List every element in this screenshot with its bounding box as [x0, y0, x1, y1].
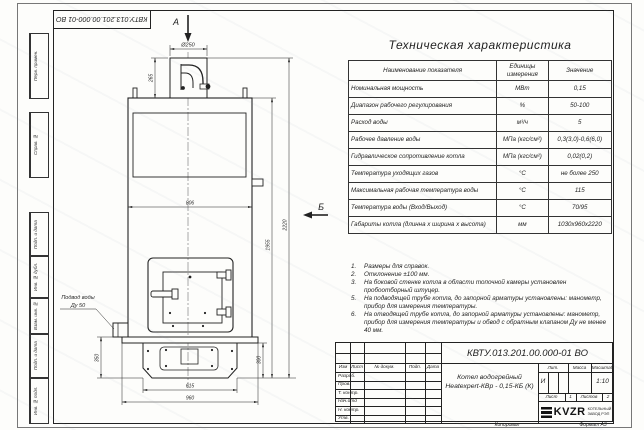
- doc-number: КВТУ.013.201.00.000-01 ВО: [441, 343, 614, 363]
- furnace-door: [148, 258, 233, 332]
- lifting-lug-left: [133, 88, 137, 98]
- table-row: Диапазон рабочего регулирования%50-100: [349, 98, 612, 115]
- dim-label-base-width-outer: 960: [186, 396, 195, 402]
- margin-box-perv-primen: Перв. примен.: [29, 33, 49, 99]
- sheet-value: 1: [565, 394, 576, 399]
- scale-header: Масштаб: [591, 365, 614, 370]
- tb-row-razrab: Разраб.: [338, 374, 355, 379]
- base-panel: [160, 347, 218, 370]
- outlet-stub: [252, 179, 263, 186]
- notes-list: 1.Размеры для справок. 2.Отклонение ±100…: [348, 263, 614, 335]
- line: [336, 415, 441, 416]
- line: [558, 372, 559, 393]
- company-subtitle: КОТЕЛЬНЫЙ ЗАВОД РЭП: [588, 407, 612, 416]
- water-inlet-label-1: Подвод воды: [61, 295, 94, 301]
- tb-row-nachotd: Нач.отд: [338, 399, 357, 404]
- margin-label: Инв. № дубл.: [30, 256, 40, 298]
- list-item: 5.На подводящей трубе котла, до запорной…: [348, 295, 614, 311]
- dim-chimney-diameter: Ø250: [170, 43, 207, 57]
- tb-col-list: Лист: [350, 364, 364, 369]
- view-b-label: Б: [318, 202, 324, 212]
- company-name: KVZR: [554, 406, 586, 418]
- water-inlet-pipe: [113, 323, 128, 337]
- top-panel: [133, 113, 246, 177]
- dim-label-body-height: 1955: [266, 239, 272, 250]
- dim-body-height: 1955: [252, 98, 276, 378]
- list-item: 2.Отклонение ±100 мм.: [348, 271, 614, 279]
- lit-header: Лит.: [538, 365, 568, 370]
- list-item: 1.Размеры для справок.: [348, 263, 614, 271]
- lifting-lug-right: [243, 88, 247, 98]
- dim-label-body-width: 806: [186, 201, 195, 207]
- ash-opening: [181, 349, 198, 364]
- view-b-marker: Б: [303, 202, 328, 219]
- base-flange: [122, 337, 258, 343]
- table-row: Рабочее давление водыМПа (кгс/см²)0,3(3,…: [349, 132, 612, 149]
- table-row: Температура уходящих газов°Сне более 250: [349, 166, 612, 183]
- company-logo: KVZR КОТЕЛЬНЫЙ ЗАВОД РЭП: [538, 401, 614, 423]
- table-row: Гидравлическое сопротивление котлаМПа (к…: [349, 149, 612, 166]
- line: [336, 381, 441, 382]
- water-inlet-callout: Подвод воды Ду 50: [60, 295, 114, 329]
- line: [336, 353, 441, 354]
- product-name: Котел водогрейный Heatexpert-КВр - 0,15-…: [441, 365, 538, 399]
- tb-col-dokum: № докум.: [364, 364, 405, 369]
- lit-value: И: [538, 378, 548, 385]
- margin-box-sprav: Справ. №: [29, 112, 49, 178]
- dim-body-width: 806: [128, 201, 252, 208]
- spec-header-name: Наименование показателя: [349, 61, 497, 81]
- margin-label: Взам. инв. №: [30, 298, 40, 334]
- sheet-label: Лист: [538, 394, 565, 399]
- table-row: Максимальная рабочая температура воды°С1…: [349, 183, 612, 200]
- table-row: Расход водым³/ч5: [349, 115, 612, 132]
- view-a-marker: А: [172, 15, 192, 42]
- base-pedestal: [143, 343, 237, 378]
- spec-header-unit: Единицы измерения: [497, 61, 548, 81]
- dim-label-base-width-inner: 615: [186, 384, 195, 390]
- dim-label-total-height: 2220: [283, 219, 289, 231]
- list-item: 3.На боковой стенке котла в области топо…: [348, 279, 614, 295]
- dim-label-base-height-right: 300: [257, 356, 263, 365]
- dim-label-chimney-diameter: Ø250: [180, 43, 195, 49]
- margin-label: Подп. и дата: [30, 334, 40, 378]
- line: [405, 343, 406, 423]
- line: [548, 372, 549, 393]
- line: [425, 343, 426, 423]
- title-block: КВТУ.013.201.00.000-01 ВО Изм Лист № док…: [335, 342, 613, 422]
- table-row: Температура воды (Вход/Выход)°С70/95: [349, 200, 612, 217]
- tb-col-data: Дата: [425, 364, 441, 369]
- table-row: Номинальная мощностьМВт0,15: [349, 81, 612, 98]
- boiler-front-view-drawing: А Ø250 265: [53, 10, 335, 422]
- tb-row-prov: Пров.: [338, 382, 351, 387]
- format-label: Формат А3: [558, 422, 628, 428]
- spec-table-title: Техническая характеристика: [348, 38, 612, 52]
- kvzr-logo-icon: [541, 407, 552, 418]
- spec-header-row: Наименование показателя Единицы измерени…: [349, 61, 612, 81]
- margin-label: Подп. и дата: [30, 213, 40, 256]
- dim-base-width-inner: 615: [143, 378, 237, 393]
- view-a-label: А: [172, 17, 179, 27]
- margin-box-vzam-inv: Взам. инв. №: [29, 297, 49, 335]
- margin-box-inv-podl: Инв. № подл.: [29, 377, 49, 424]
- tb-row-nkontr: Н. контр.: [338, 408, 360, 413]
- dim-chimney-height: 265: [149, 58, 169, 98]
- margin-box-podp-data-2: Подп. и дата: [29, 333, 49, 379]
- line: [364, 343, 365, 423]
- spec-header-value: Значение: [548, 61, 612, 81]
- door-knob: [189, 276, 192, 279]
- margin-box-podp-data-1: Подп. и дата: [29, 212, 49, 257]
- drawing-sheet: Перв. примен. Справ. № Подп. и дата Инв.…: [0, 0, 644, 430]
- dim-label-chimney-height: 265: [149, 74, 155, 84]
- margin-box-inv-dubl: Инв. № дубл.: [29, 255, 49, 299]
- scale-value: 1:10: [591, 378, 614, 385]
- spec-table: Наименование показателя Единицы измерени…: [348, 60, 612, 234]
- leader-line: [60, 309, 114, 329]
- dim-base-width-outer: 960: [122, 343, 258, 405]
- copied-label: Копировал: [472, 422, 542, 428]
- tb-col-podp: Подп.: [405, 364, 425, 369]
- mass-header: Масса: [568, 365, 591, 370]
- list-item: 6.На отводящей трубе котла, до запорной …: [348, 311, 614, 335]
- margin-label: Инв. № подл.: [30, 378, 40, 423]
- tb-row-utv: Утв.: [338, 416, 349, 421]
- tb-row-tkontr: Т. контр.: [338, 391, 359, 396]
- sheets-label: Листов: [576, 394, 602, 399]
- door-bolts: [169, 312, 206, 327]
- dim-total-height: 2220: [207, 58, 293, 378]
- dim-label-base-height-left: 350: [95, 354, 101, 363]
- tb-col-izm: Изм: [336, 364, 350, 369]
- water-inlet-label-2: Ду 50: [70, 303, 86, 309]
- table-row: Габариты котла (длинна х ширина х высота…: [349, 217, 612, 234]
- margin-label: Перв. примен.: [30, 34, 40, 98]
- dim-base-height-right: 300: [237, 343, 296, 378]
- line: [538, 372, 614, 373]
- margin-label: Справ. №: [30, 113, 40, 177]
- sheets-value: 2: [602, 394, 614, 399]
- chimney-collar: [170, 58, 207, 98]
